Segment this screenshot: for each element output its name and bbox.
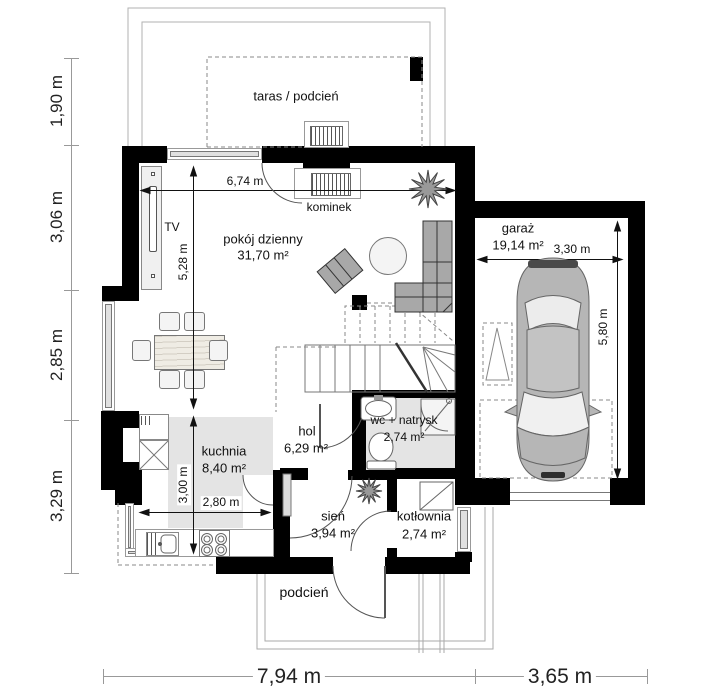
terrace-outline (128, 8, 445, 146)
plan-linework (0, 0, 701, 700)
dim-kitchen-height: 3,00 m (177, 465, 191, 506)
room-area-pokoj: 31,70 m² (237, 249, 288, 264)
dim-left-1: 1,90 m (47, 75, 67, 127)
room-label-hol: hol (298, 425, 315, 440)
plant-icon (356, 478, 382, 504)
room-label-taras: taras / podcień (253, 90, 338, 105)
dim-living-width: 6,74 m (227, 175, 264, 189)
room-label-kuchnia: kuchnia (202, 445, 247, 460)
dim-left-4: 3,29 m (47, 470, 67, 522)
dim-left-2: 3,06 m (47, 191, 67, 243)
sofa (395, 221, 452, 312)
dim-garage-width: 3,30 m (554, 243, 591, 257)
room-label-podcien: podcień (279, 584, 328, 600)
room-area-sien: 3,94 m² (311, 527, 355, 542)
dim-living-height: 5,28 m (177, 244, 191, 281)
plant-icon (409, 170, 447, 208)
label-tv: TV (164, 221, 179, 235)
stairs (305, 343, 455, 392)
room-area-kotlownia: 2,74 m² (402, 528, 446, 543)
dim-left-3: 2,85 m (47, 329, 67, 381)
floor-plan: taras / podcień pokój dzienny 31,70 m² T… (0, 0, 701, 700)
fridge-x-icon (140, 441, 168, 469)
room-area-wc: 2,74 m² (384, 431, 425, 445)
dim-bottom-2: 3,65 m (524, 665, 596, 689)
dim-kitchen-width: 2,80 m (201, 496, 242, 510)
dim-garage-height: 5,80 m (597, 309, 611, 346)
car (505, 258, 601, 481)
boiler (420, 482, 453, 510)
room-label-pokoj: pokój dzienny (223, 233, 303, 248)
dim-bottom-1: 7,94 m (253, 665, 325, 689)
room-area-hol: 6,29 m² (284, 442, 328, 457)
label-kominek: kominek (307, 201, 352, 215)
room-label-garaz: garaż (502, 222, 535, 237)
garage-door (510, 493, 610, 501)
stove-burners (202, 534, 227, 556)
kitchen-sink-basin (158, 535, 176, 553)
armchair (317, 249, 363, 294)
room-label-kotlownia: kotłownia (397, 510, 451, 525)
room-label-wc: wc + natrysk (370, 414, 437, 428)
room-area-garaz: 19,14 m² (492, 239, 543, 254)
room-area-kuchnia: 8,40 m² (202, 462, 246, 477)
room-label-sien: sień (321, 510, 345, 525)
podcien-outline (257, 507, 493, 653)
